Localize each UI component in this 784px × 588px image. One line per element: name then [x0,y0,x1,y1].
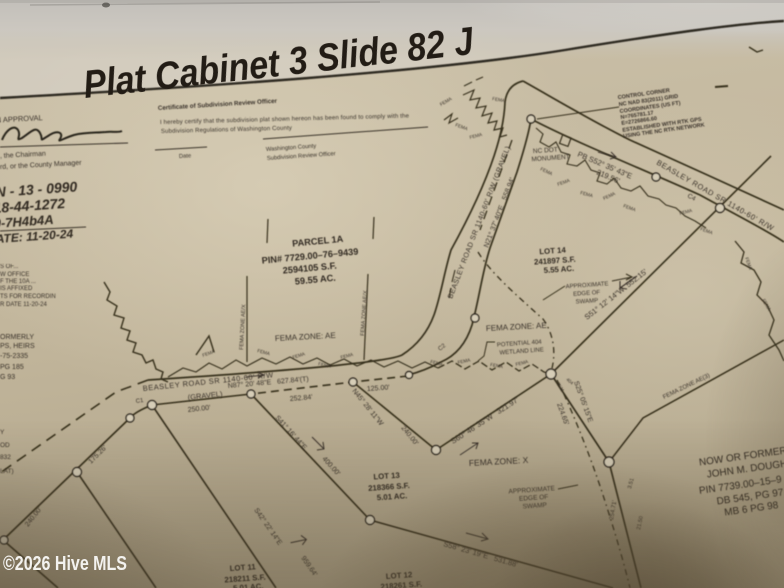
svg-text:Date: Date [179,153,192,160]
svg-text:©2026 Hive MLS: ©2026 Hive MLS [3,552,127,575]
svg-text:TS FOR RECORDIN: TS FOR RECORDIN [0,294,56,300]
svg-text:G 93: G 93 [0,374,15,381]
svg-text:PG 185: PG 185 [0,364,24,371]
svg-text:F THE 10A ...: F THE 10A ... [0,279,36,285]
svg-text:R DATE 11-20-24: R DATE 11-20-24 [0,302,47,308]
svg-text:LOT 14: LOT 14 [539,245,567,256]
svg-text:C1: C1 [135,398,144,405]
svg-text:IS AFFIXED: IS AFFIXED [0,286,33,292]
svg-text:W OFFICE: W OFFICE [0,272,29,278]
svg-text:PS, HEIRS: PS, HEIRS [0,343,35,350]
svg-text:ORMERLY: ORMERLY [0,334,34,341]
svg-text:S OF...: S OF... [0,264,19,270]
svg-text:-75-2335: -75-2335 [0,353,28,360]
